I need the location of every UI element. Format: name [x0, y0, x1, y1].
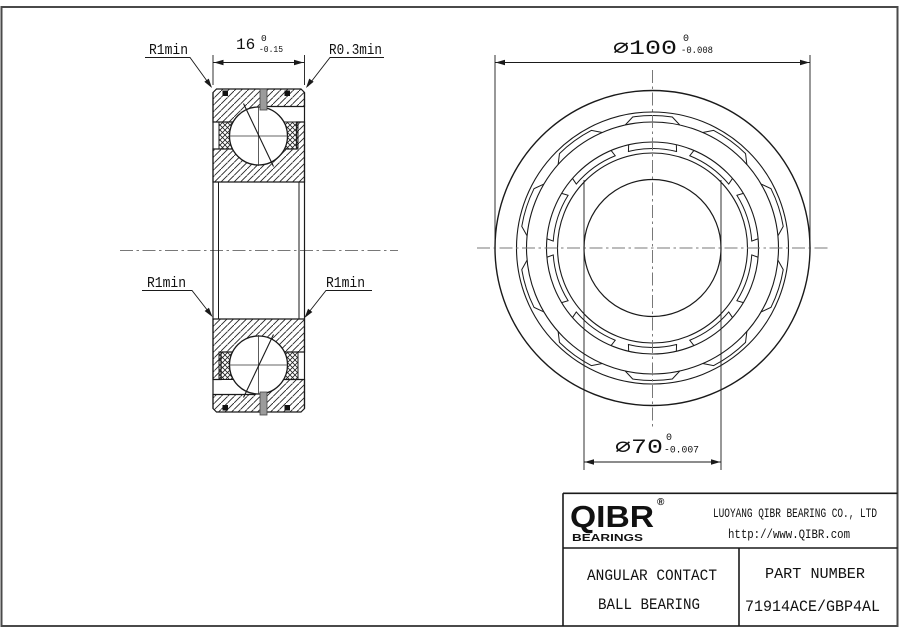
- bore-dim-tol-lower: -0.007: [664, 446, 699, 457]
- od-dim-tol-upper: 0: [683, 34, 689, 45]
- product-name-line1: ANGULAR CONTACT: [587, 567, 717, 585]
- label-r03min-top-right: R0.3min: [329, 43, 382, 59]
- bearing-drawing-svg: 16 0 -0.15 R1min R0.3min R1min R1min: [0, 0, 900, 636]
- company-website: http://www.QIBR.com: [728, 528, 850, 542]
- lubrication-hole-upper: [260, 89, 267, 110]
- bore-dim-value: ∅70: [615, 437, 663, 460]
- width-dim-tol-upper: 0: [261, 33, 267, 44]
- seal-upper-right: [285, 91, 291, 97]
- lubrication-hole-lower: [260, 392, 267, 415]
- width-dim-value: 16: [236, 36, 255, 54]
- width-dim-tol-lower: -0.15: [259, 44, 283, 55]
- label-r1min-top-left: R1min: [149, 43, 188, 59]
- od-dim-tol-lower: -0.008: [681, 46, 713, 57]
- logo-text: QIBR: [570, 499, 654, 534]
- company-name: LUOYANG QIBR BEARING CO., LTD: [713, 507, 877, 521]
- drawing-page: 16 0 -0.15 R1min R0.3min R1min R1min: [0, 0, 900, 636]
- part-number-value: 71914ACE/GBP4AL: [745, 598, 880, 616]
- bore-dim-tol-upper: 0: [666, 433, 672, 444]
- registered-mark-icon: ®: [657, 497, 665, 508]
- label-r1min-mid-left: R1min: [147, 276, 186, 292]
- seal-lower-left: [223, 405, 229, 411]
- label-r1min-mid-right: R1min: [326, 276, 365, 292]
- seal-upper-left: [223, 91, 229, 97]
- od-dim-value: ∅100: [613, 38, 677, 61]
- part-number-label: PART NUMBER: [765, 566, 865, 583]
- product-name-line2: BALL BEARING: [598, 596, 700, 614]
- logo-subtext: BEARINGS: [572, 533, 643, 544]
- seal-lower-right: [285, 405, 291, 411]
